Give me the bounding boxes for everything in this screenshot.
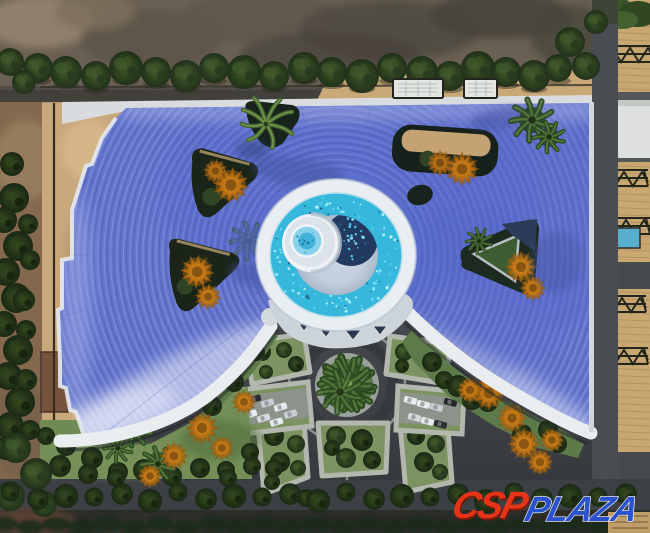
svg-text:CSP: CSP bbox=[448, 485, 533, 527]
svg-text:PLAZA: PLAZA bbox=[521, 489, 641, 528]
